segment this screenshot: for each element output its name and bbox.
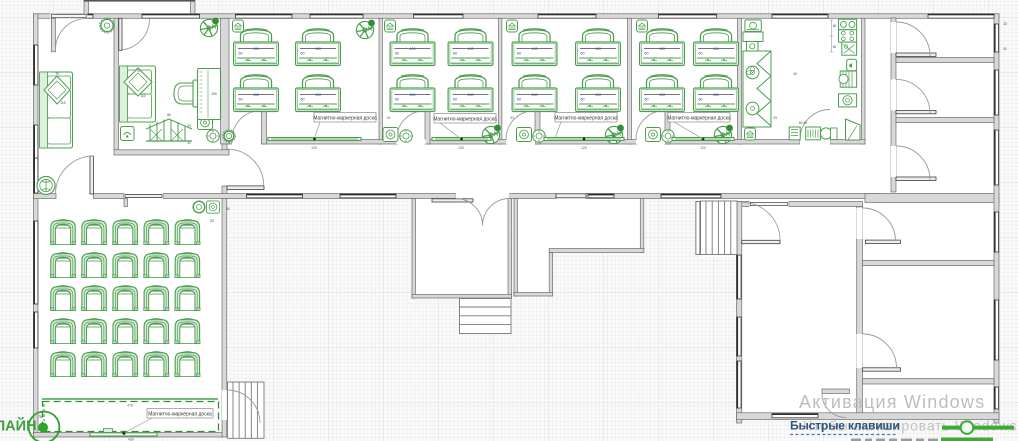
svg-text:Магнитно-маркерная доска: Магнитно-маркерная доска: [667, 115, 731, 121]
svg-text:31: 31: [1003, 47, 1007, 51]
svg-text:33: 33: [387, 116, 391, 120]
svg-text:60: 60: [833, 24, 837, 28]
svg-text:Магнитно-маркерная доска: Магнитно-маркерная доска: [554, 115, 618, 121]
svg-text:33: 33: [210, 219, 214, 223]
svg-text:120: 120: [311, 146, 317, 150]
svg-text:100: 100: [211, 92, 217, 96]
svg-text:Магнитно-маркерная доска: Магнитно-маркерная доска: [313, 115, 377, 121]
svg-text:120: 120: [581, 146, 587, 150]
svg-text:Магнитно-маркерная доска: Магнитно-маркерная доска: [433, 116, 497, 122]
svg-text:430: 430: [128, 438, 134, 441]
svg-text:60: 60: [833, 45, 837, 49]
svg-text:Магнитно-маркерная доска: Магнитно-маркерная доска: [148, 411, 212, 417]
svg-text:60 80: 60 80: [799, 121, 808, 125]
svg-text:33: 33: [510, 116, 514, 120]
svg-text:Активация Windows: Активация Windows: [799, 392, 985, 412]
svg-text:33: 33: [1003, 22, 1007, 26]
svg-text:70: 70: [55, 72, 59, 76]
svg-text:120: 120: [700, 146, 706, 150]
svg-text:31: 31: [187, 141, 191, 145]
svg-text:78: 78: [38, 415, 42, 419]
svg-text:110: 110: [60, 101, 65, 105]
svg-text:478: 478: [127, 404, 133, 408]
svg-text:40: 40: [793, 72, 797, 76]
svg-text:33: 33: [773, 116, 777, 120]
svg-text:31: 31: [226, 207, 230, 211]
svg-text:70: 70: [136, 69, 140, 73]
svg-text:ЛАЙН: ЛАЙН: [0, 417, 37, 435]
svg-text:Быстрые клавиши: Быстрые клавиши: [790, 419, 900, 433]
svg-text:80: 80: [167, 113, 171, 117]
svg-text:110: 110: [140, 94, 145, 98]
svg-text:120: 120: [458, 146, 464, 150]
